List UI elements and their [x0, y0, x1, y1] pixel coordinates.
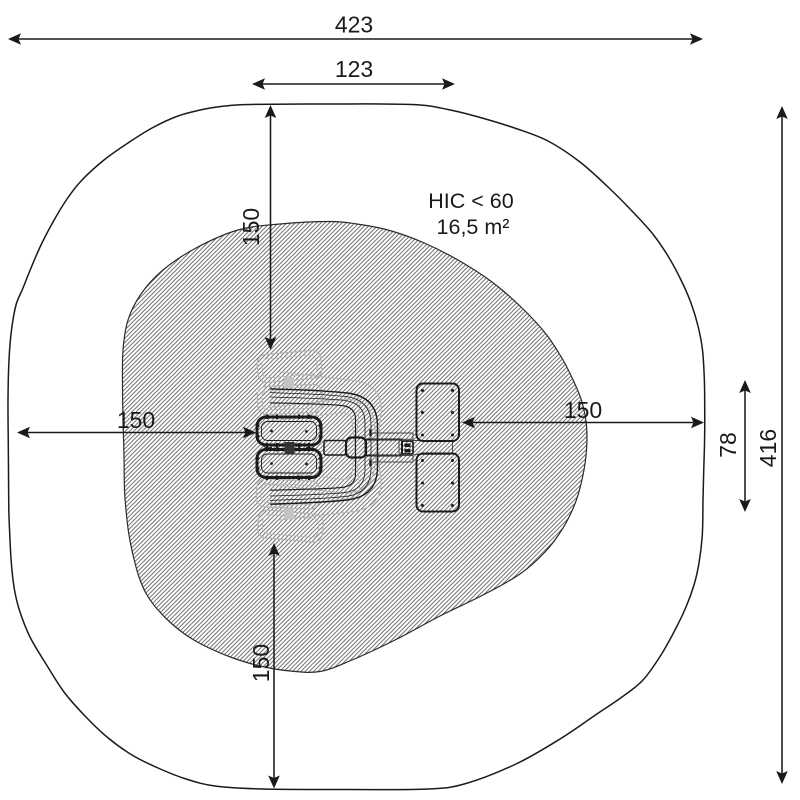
svg-text:123: 123: [335, 56, 373, 82]
svg-text:16,5 m²: 16,5 m²: [437, 215, 510, 239]
svg-text:HIC < 60: HIC < 60: [428, 189, 513, 213]
svg-text:78: 78: [715, 432, 741, 458]
svg-text:150: 150: [564, 397, 602, 423]
svg-text:423: 423: [335, 12, 373, 38]
svg-text:416: 416: [755, 429, 781, 467]
svg-text:150: 150: [248, 644, 274, 682]
svg-text:150: 150: [117, 407, 155, 433]
svg-text:150: 150: [238, 208, 264, 246]
